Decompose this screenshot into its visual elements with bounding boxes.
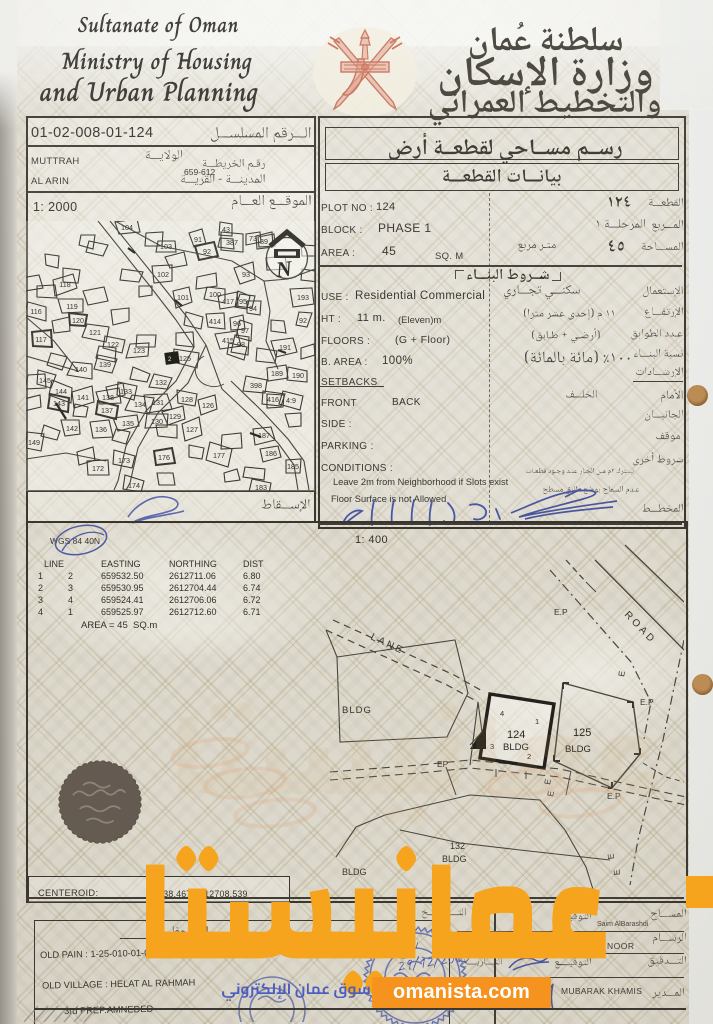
- svg-text:73: 73: [249, 234, 257, 243]
- svg-text:126: 126: [202, 401, 214, 410]
- svg-text:172: 172: [92, 464, 104, 473]
- svg-text:93: 93: [242, 270, 250, 279]
- svg-text:102: 102: [157, 270, 169, 279]
- svg-text:122: 122: [107, 340, 119, 349]
- svg-text:LANE: LANE: [369, 632, 406, 657]
- svg-text:136: 136: [95, 425, 107, 434]
- svg-text:176: 176: [158, 453, 170, 462]
- svg-text:135: 135: [122, 419, 134, 428]
- svg-text:118: 118: [59, 280, 70, 289]
- svg-text:189: 189: [271, 369, 283, 378]
- svg-text:183: 183: [255, 483, 267, 491]
- svg-text:103: 103: [160, 242, 172, 251]
- svg-text:142: 142: [66, 424, 78, 433]
- svg-text:E: E: [612, 869, 622, 876]
- svg-text:415: 415: [222, 336, 234, 345]
- svg-text:149: 149: [28, 438, 40, 447]
- svg-text:100: 100: [209, 290, 221, 299]
- svg-text:143: 143: [53, 399, 65, 408]
- svg-text:119: 119: [66, 302, 77, 311]
- svg-text:91: 91: [194, 235, 202, 244]
- svg-text:39: 39: [260, 237, 268, 246]
- svg-text:186: 186: [265, 449, 277, 458]
- svg-text:173: 173: [118, 456, 130, 465]
- svg-text:177: 177: [213, 451, 225, 460]
- svg-text:416: 416: [267, 395, 279, 404]
- svg-text:E: E: [616, 670, 627, 678]
- svg-text:95: 95: [239, 297, 247, 306]
- svg-text:96: 96: [233, 319, 241, 328]
- svg-text:92: 92: [299, 316, 307, 325]
- svg-text:137: 137: [101, 406, 113, 415]
- svg-text:191: 191: [279, 343, 291, 352]
- svg-text:98: 98: [237, 340, 245, 349]
- svg-text:4:9: 4:9: [286, 396, 296, 405]
- svg-text:92: 92: [203, 247, 211, 256]
- svg-text:131: 131: [152, 398, 164, 407]
- svg-text:123: 123: [133, 346, 145, 355]
- svg-text:132: 132: [155, 378, 167, 387]
- svg-text:E.P: E.P: [554, 607, 568, 617]
- svg-text:387: 387: [226, 238, 238, 247]
- svg-text:133: 133: [120, 387, 132, 396]
- svg-text:101: 101: [177, 293, 189, 302]
- svg-text:138: 138: [102, 393, 114, 402]
- svg-text:94: 94: [249, 304, 257, 313]
- svg-text:127: 127: [186, 425, 198, 434]
- svg-text:128: 128: [181, 395, 193, 404]
- svg-text:139: 139: [99, 360, 111, 369]
- svg-text:398: 398: [250, 381, 262, 390]
- svg-text:97: 97: [241, 326, 249, 335]
- svg-text:43: 43: [222, 225, 230, 234]
- svg-text:414: 414: [209, 317, 221, 326]
- svg-text:141: 141: [77, 393, 89, 402]
- svg-text:185: 185: [287, 462, 299, 471]
- svg-text:125: 125: [179, 354, 191, 363]
- svg-text:187: 187: [258, 431, 270, 440]
- svg-text:E: E: [606, 853, 616, 860]
- svg-text:120: 120: [72, 316, 84, 325]
- svg-text:144: 144: [55, 387, 67, 396]
- svg-text:145: 145: [39, 376, 51, 385]
- svg-text:116: 116: [30, 307, 41, 316]
- svg-text:140: 140: [75, 365, 87, 374]
- svg-text:130: 130: [151, 417, 163, 426]
- svg-text:417: 417: [222, 297, 234, 306]
- svg-text:ROAD: ROAD: [622, 609, 658, 646]
- svg-text:193: 193: [297, 293, 309, 302]
- svg-text:134: 134: [134, 400, 146, 409]
- svg-text:190: 190: [292, 371, 304, 380]
- svg-text:104: 104: [121, 223, 133, 232]
- svg-text:129: 129: [169, 412, 181, 421]
- svg-text:121: 121: [89, 328, 101, 337]
- svg-text:117: 117: [35, 335, 46, 344]
